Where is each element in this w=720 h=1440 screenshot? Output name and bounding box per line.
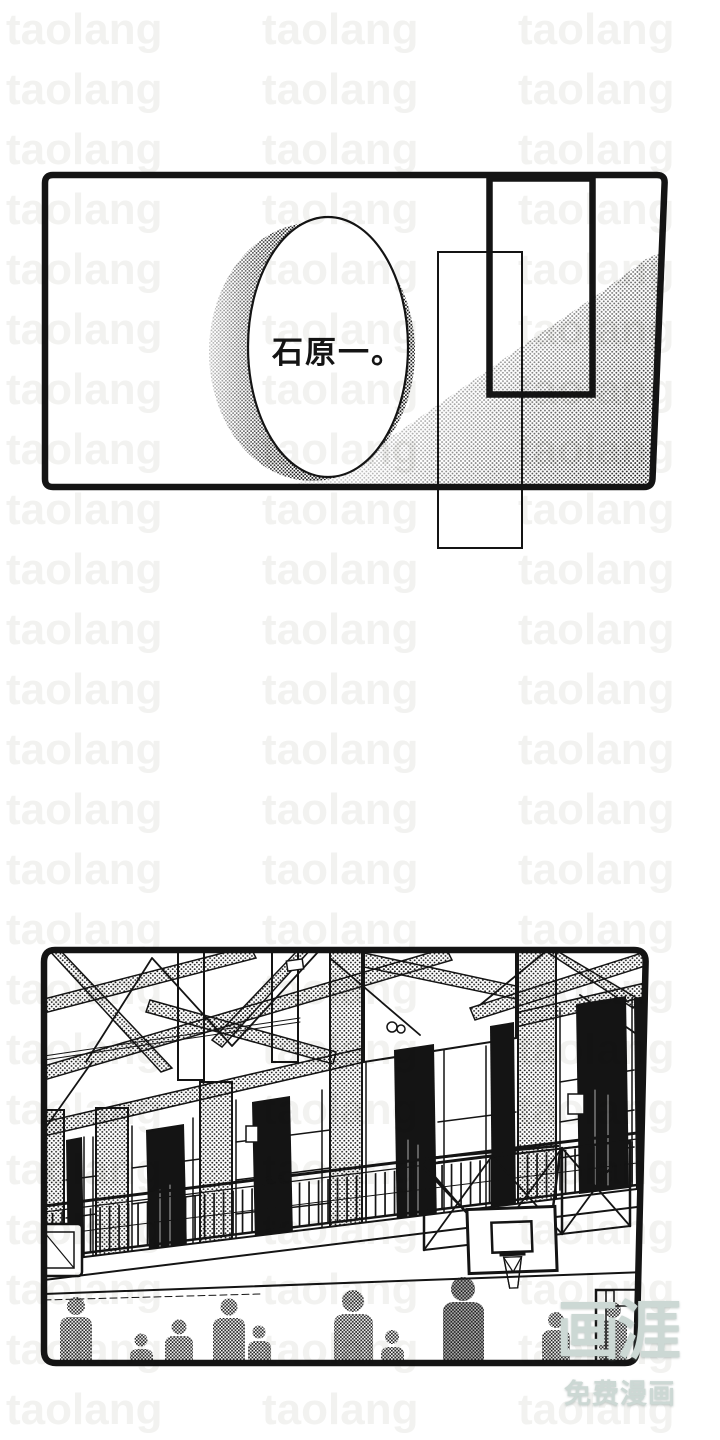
ghost-watermark-layer xyxy=(0,0,720,1440)
comic-artwork: taolang xyxy=(0,0,720,1440)
manga-page: taolang xyxy=(0,0,720,1440)
